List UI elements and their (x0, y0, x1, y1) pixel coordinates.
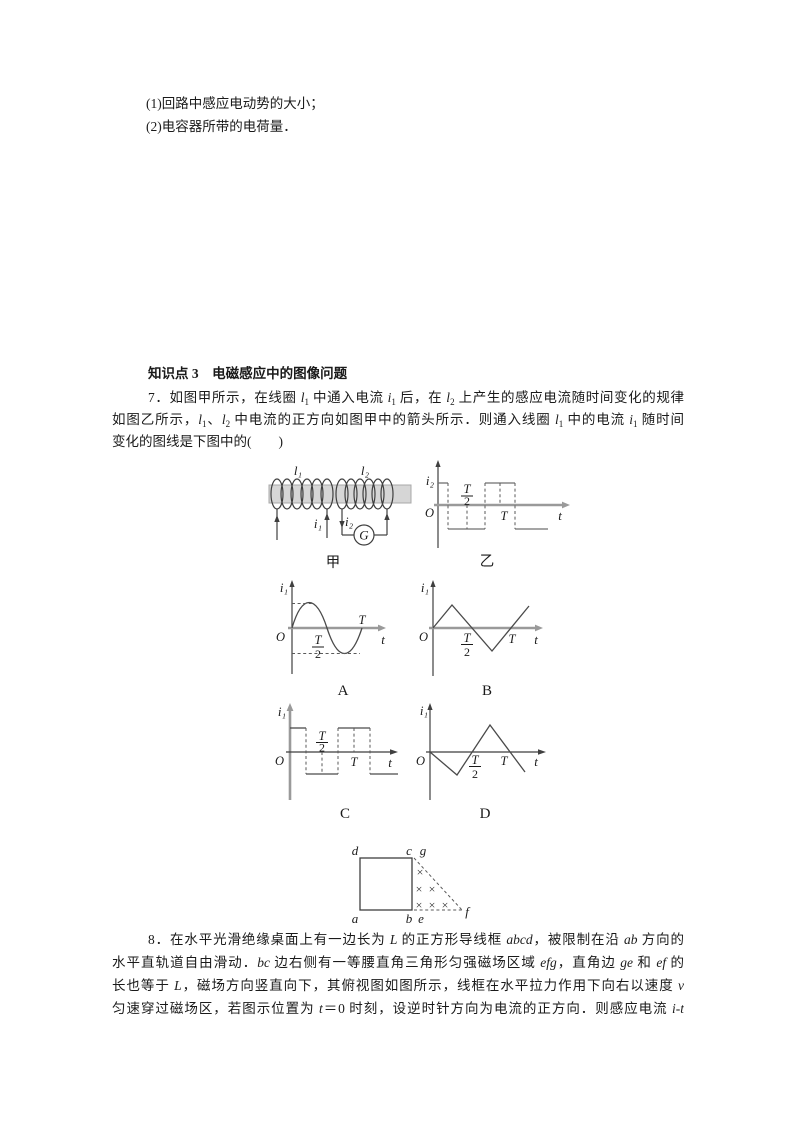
half-period-numerator: T (464, 631, 472, 645)
question-7: 7．如图甲所示，在线圈 l1 中通入电流 i1 后，在 l2 上产生的感应电流随… (112, 387, 684, 453)
vertex-f-label: f (465, 904, 471, 919)
y-axis-label: i₂ (426, 473, 435, 488)
coil-l2-label: l₂ (361, 463, 370, 478)
current-direction-arrow-icon (274, 515, 279, 522)
wire-frame-abcd (360, 858, 412, 910)
option-b-graph: i₁ O T 2 T t B (415, 578, 555, 702)
y-axis-label: i₁ (280, 580, 288, 595)
y-axis-label: i₁ (420, 703, 428, 718)
option-a-graph: i₁ O T 2 T t A (268, 578, 400, 702)
figure-yi-i2-graph: i₂ O T 2 T t 乙 (420, 458, 575, 570)
cross-icon: × (429, 882, 436, 896)
x-axis-arrow-icon (390, 749, 398, 755)
x-axis-arrow-icon (562, 502, 570, 509)
y-axis-arrow-icon (435, 460, 440, 467)
vertex-b-label: b (406, 911, 413, 926)
intro-line-1: (1)回路中感应电动势的大小； (146, 93, 546, 115)
y-axis-arrow-icon (289, 580, 294, 587)
half-period-numerator: T (315, 633, 323, 647)
current-direction-arrow-icon (384, 513, 389, 520)
q7-line-3: 变化的图线是下图中的( ) (112, 431, 684, 453)
x-axis-arrow-icon (378, 625, 386, 632)
q8-line-4: 匀速穿过磁场区，若图示位置为 t＝0 时刻，设逆时针方向为电流的正方向．则感应电… (112, 997, 684, 1020)
x-axis-label: t (534, 632, 538, 647)
vertex-d-label: d (352, 843, 359, 858)
vertex-a-label: a (352, 911, 359, 926)
current-i1-arrow-icon (324, 513, 329, 520)
origin-label: O (276, 630, 285, 644)
half-period-denominator: 2 (464, 645, 470, 659)
y-axis-arrow-icon (287, 703, 294, 711)
vertex-c-label: c (406, 843, 412, 858)
field-into-page-crosses: × × × × × × (416, 865, 449, 912)
vertex-g-label: g (420, 843, 427, 858)
option-a-label: A (338, 683, 349, 699)
q8-line-2: 水平直轨道自由滑动．bc 边右侧有一等腰直角三角形匀强磁场区域 efg，直角边 … (112, 951, 684, 974)
period-label: T (509, 632, 517, 646)
x-axis-label: t (381, 632, 385, 647)
cross-icon: × (429, 898, 436, 912)
y-axis-arrow-icon (427, 703, 432, 710)
y-axis-arrow-icon (430, 580, 435, 587)
iron-core-bar (269, 485, 411, 503)
q8-line-1: 8．在水平光滑绝缘桌面上有一边长为 L 的正方形导线框 abcd，被限制在沿 a… (112, 928, 684, 951)
intro-line-2: (2)电容器所带的电荷量． (146, 116, 546, 138)
option-d-graph: i₁ O T 2 T t D (415, 700, 555, 822)
y-axis-label: i₁ (421, 580, 429, 595)
option-b-label: B (482, 683, 492, 699)
x-axis-arrow-icon (535, 625, 543, 632)
coil-l1-label: l₁ (294, 463, 302, 478)
figure-jia-caption: 甲 (326, 555, 341, 571)
figure-jia-coil-circuit: G l₁ l₂ i₁ i₂ 甲 (265, 460, 420, 572)
option-c-graph: i₁ O T 2 T t C (268, 700, 404, 822)
y-axis-label: i₁ (278, 704, 286, 719)
half-period-denominator: 2 (464, 494, 470, 508)
origin-label: O (419, 630, 428, 644)
period-label: T (351, 755, 359, 769)
origin-label: O (425, 506, 434, 520)
half-period-numerator: T (472, 753, 480, 767)
section-heading: 知识点 3 电磁感应中的图像问题 (148, 364, 347, 384)
vertex-e-label: e (418, 911, 424, 926)
option-d-label: D (480, 806, 491, 822)
galvanometer-label: G (359, 528, 369, 543)
cross-icon: × (416, 898, 423, 912)
current-i2-arrow-icon (339, 521, 344, 528)
current-i2-label: i₂ (345, 514, 354, 529)
option-c-label: C (340, 806, 350, 822)
current-i1-label: i₁ (314, 516, 322, 531)
origin-label: O (275, 754, 284, 768)
x-axis-label: t (558, 508, 562, 523)
q7-line-2: 如图乙所示，l1、l2 中电流的正方向如图甲中的箭头所示．则通入线圈 l1 中的… (112, 409, 684, 431)
period-label: T (359, 613, 367, 627)
half-period-denominator: 2 (319, 741, 325, 755)
q7-line-1: 7．如图甲所示，在线圈 l1 中通入电流 i1 后，在 l2 上产生的感应电流随… (112, 387, 684, 409)
figure-q8-frame-and-field: × × × × × × d c g a b e f (330, 842, 485, 930)
question-8: 8．在水平光滑绝缘桌面上有一边长为 L 的正方形导线框 abcd，被限制在沿 a… (112, 928, 684, 1020)
half-period-denominator: 2 (315, 647, 321, 661)
cross-icon: × (442, 898, 449, 912)
period-label: T (501, 754, 509, 768)
cross-icon: × (416, 882, 423, 896)
figure-yi-caption: 乙 (480, 554, 495, 570)
cross-icon: × (417, 865, 424, 879)
origin-label: O (416, 754, 425, 768)
worksheet-page: (1)回路中感应电动势的大小； (2)电容器所带的电荷量． 知识点 3 电磁感应… (0, 0, 794, 1123)
x-axis-label: t (388, 755, 392, 770)
x-axis-arrow-icon (538, 749, 546, 755)
x-axis-label: t (534, 754, 538, 769)
period-label: T (501, 509, 509, 523)
dashed-guides (306, 728, 370, 774)
half-period-denominator: 2 (472, 767, 478, 781)
q8-line-3: 长也等于 L，磁场方向竖直向下，其俯视图如图所示，线框在水平拉力作用下向右以速度… (112, 974, 684, 997)
